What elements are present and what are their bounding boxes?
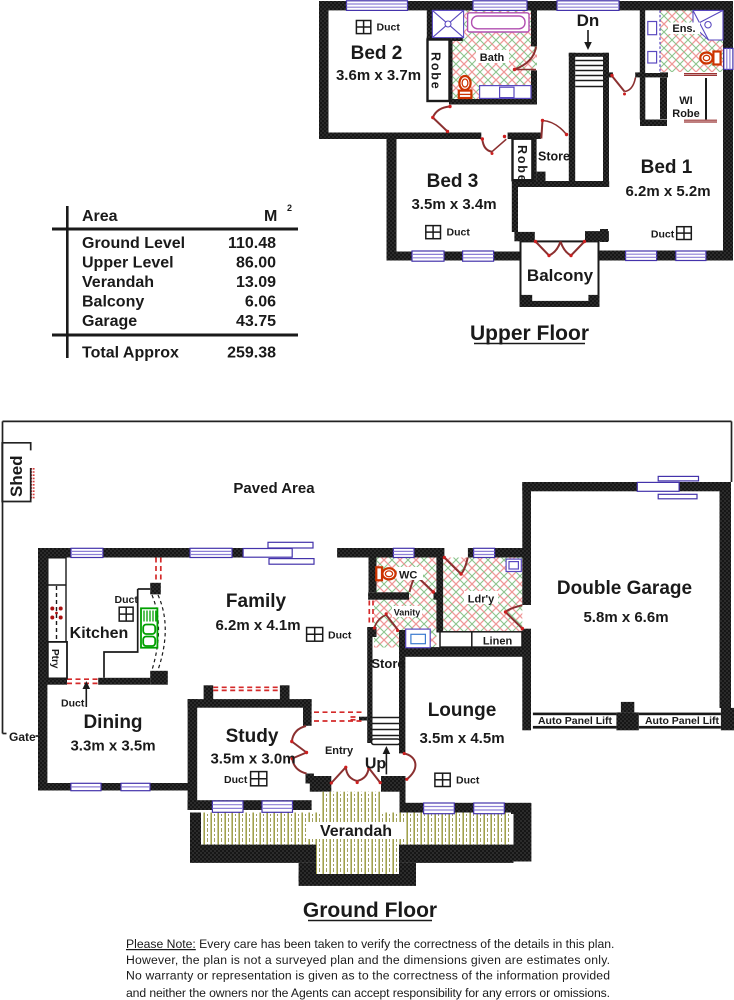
svg-text:Robe: Robe xyxy=(515,145,529,183)
svg-text:5.8m x 6.6m: 5.8m x 6.6m xyxy=(583,609,668,626)
svg-text:43.75: 43.75 xyxy=(236,313,276,330)
svg-text:Ptry: Ptry xyxy=(49,649,60,669)
svg-text:Ldr'y: Ldr'y xyxy=(468,594,495,606)
svg-text:WC: WC xyxy=(399,570,417,582)
svg-text:Paved Area: Paved Area xyxy=(233,480,315,497)
svg-text:No warranty or representatio: No warranty or representation is given a… xyxy=(126,969,610,983)
svg-text:Study: Study xyxy=(226,726,279,747)
svg-text:Duct: Duct xyxy=(61,698,85,710)
svg-text:and neither the owners nor the: and neither the owners nor the Agents ca… xyxy=(126,986,610,1000)
svg-text:3.5m x 3.0m: 3.5m x 3.0m xyxy=(210,751,295,768)
svg-text:Bed 3: Bed 3 xyxy=(427,171,479,192)
svg-text:WI: WI xyxy=(679,95,692,107)
svg-text:Verandah: Verandah xyxy=(82,274,154,291)
svg-text:Ground Floor: Ground Floor xyxy=(303,899,437,922)
svg-text:Duct: Duct xyxy=(224,774,248,786)
svg-text:Total Approx: Total Approx xyxy=(82,345,179,362)
svg-text:Bed 1: Bed 1 xyxy=(641,157,693,178)
svg-text:3.3m x 3.5m: 3.3m x 3.5m xyxy=(70,738,155,755)
svg-text:However, the plan is not a: However, the plan is not a surveyed plan… xyxy=(126,953,610,967)
svg-text:Garage: Garage xyxy=(82,313,137,330)
svg-text:Verandah: Verandah xyxy=(320,823,392,840)
svg-text:Robe: Robe xyxy=(429,52,443,90)
svg-text:Ground Level: Ground Level xyxy=(82,235,185,252)
svg-text:Entry: Entry xyxy=(325,745,354,757)
svg-text:2: 2 xyxy=(287,203,292,213)
svg-text:Upper Level: Upper Level xyxy=(82,255,174,272)
svg-text:13.09: 13.09 xyxy=(236,274,276,291)
svg-text:Linen: Linen xyxy=(483,636,513,648)
svg-text:Store: Store xyxy=(371,656,404,671)
svg-text:Duct: Duct xyxy=(456,775,480,787)
svg-text:M: M xyxy=(264,208,277,225)
svg-text:259.38: 259.38 xyxy=(227,345,276,362)
svg-text:Area: Area xyxy=(82,208,118,225)
svg-text:Ens.: Ens. xyxy=(672,23,695,35)
svg-text:6.2m x 5.2m: 6.2m x 5.2m xyxy=(625,183,710,200)
svg-text:Duct: Duct xyxy=(377,22,401,34)
svg-text:Robe: Robe xyxy=(672,108,700,120)
svg-text:Vanity: Vanity xyxy=(394,608,421,618)
svg-text:6.2m x 4.1m: 6.2m x 4.1m xyxy=(215,617,300,634)
svg-text:Bed 2: Bed 2 xyxy=(351,43,403,64)
svg-text:Duct: Duct xyxy=(328,630,352,642)
svg-text:Auto Panel Lift: Auto Panel Lift xyxy=(538,715,613,727)
svg-text:Auto Panel Lift: Auto Panel Lift xyxy=(645,715,720,727)
svg-text:Lounge: Lounge xyxy=(428,700,497,721)
svg-text:Bath: Bath xyxy=(480,52,505,64)
svg-text:Balcony: Balcony xyxy=(527,266,594,285)
svg-text:110.48: 110.48 xyxy=(228,235,276,252)
svg-text:Balcony: Balcony xyxy=(82,294,144,311)
svg-text:Dn: Dn xyxy=(577,11,600,30)
svg-text:3.5m x 3.4m: 3.5m x 3.4m xyxy=(411,196,496,213)
svg-text:Duct: Duct xyxy=(115,594,139,606)
svg-text:Duct: Duct xyxy=(447,227,471,239)
svg-text:Dining: Dining xyxy=(83,712,142,733)
svg-text:3.6m x 3.7m: 3.6m x 3.7m xyxy=(336,67,421,84)
svg-text:6.06: 6.06 xyxy=(245,294,276,311)
svg-text:Up: Up xyxy=(365,756,387,773)
svg-text:Please Note: Every care has b: Please Note: Every care has been taken t… xyxy=(126,937,614,951)
svg-text:Duct: Duct xyxy=(651,229,675,241)
svg-text:Double Garage: Double Garage xyxy=(557,578,692,599)
svg-text:86.00: 86.00 xyxy=(236,255,276,272)
svg-text:Gate: Gate xyxy=(9,730,36,744)
svg-text:Store: Store xyxy=(538,150,570,164)
svg-text:Shed: Shed xyxy=(7,455,26,497)
svg-text:3.5m x 4.5m: 3.5m x 4.5m xyxy=(419,730,504,747)
svg-text:Family: Family xyxy=(226,591,287,612)
svg-text:Upper Floor: Upper Floor xyxy=(470,322,589,345)
svg-text:Kitchen: Kitchen xyxy=(70,625,129,642)
